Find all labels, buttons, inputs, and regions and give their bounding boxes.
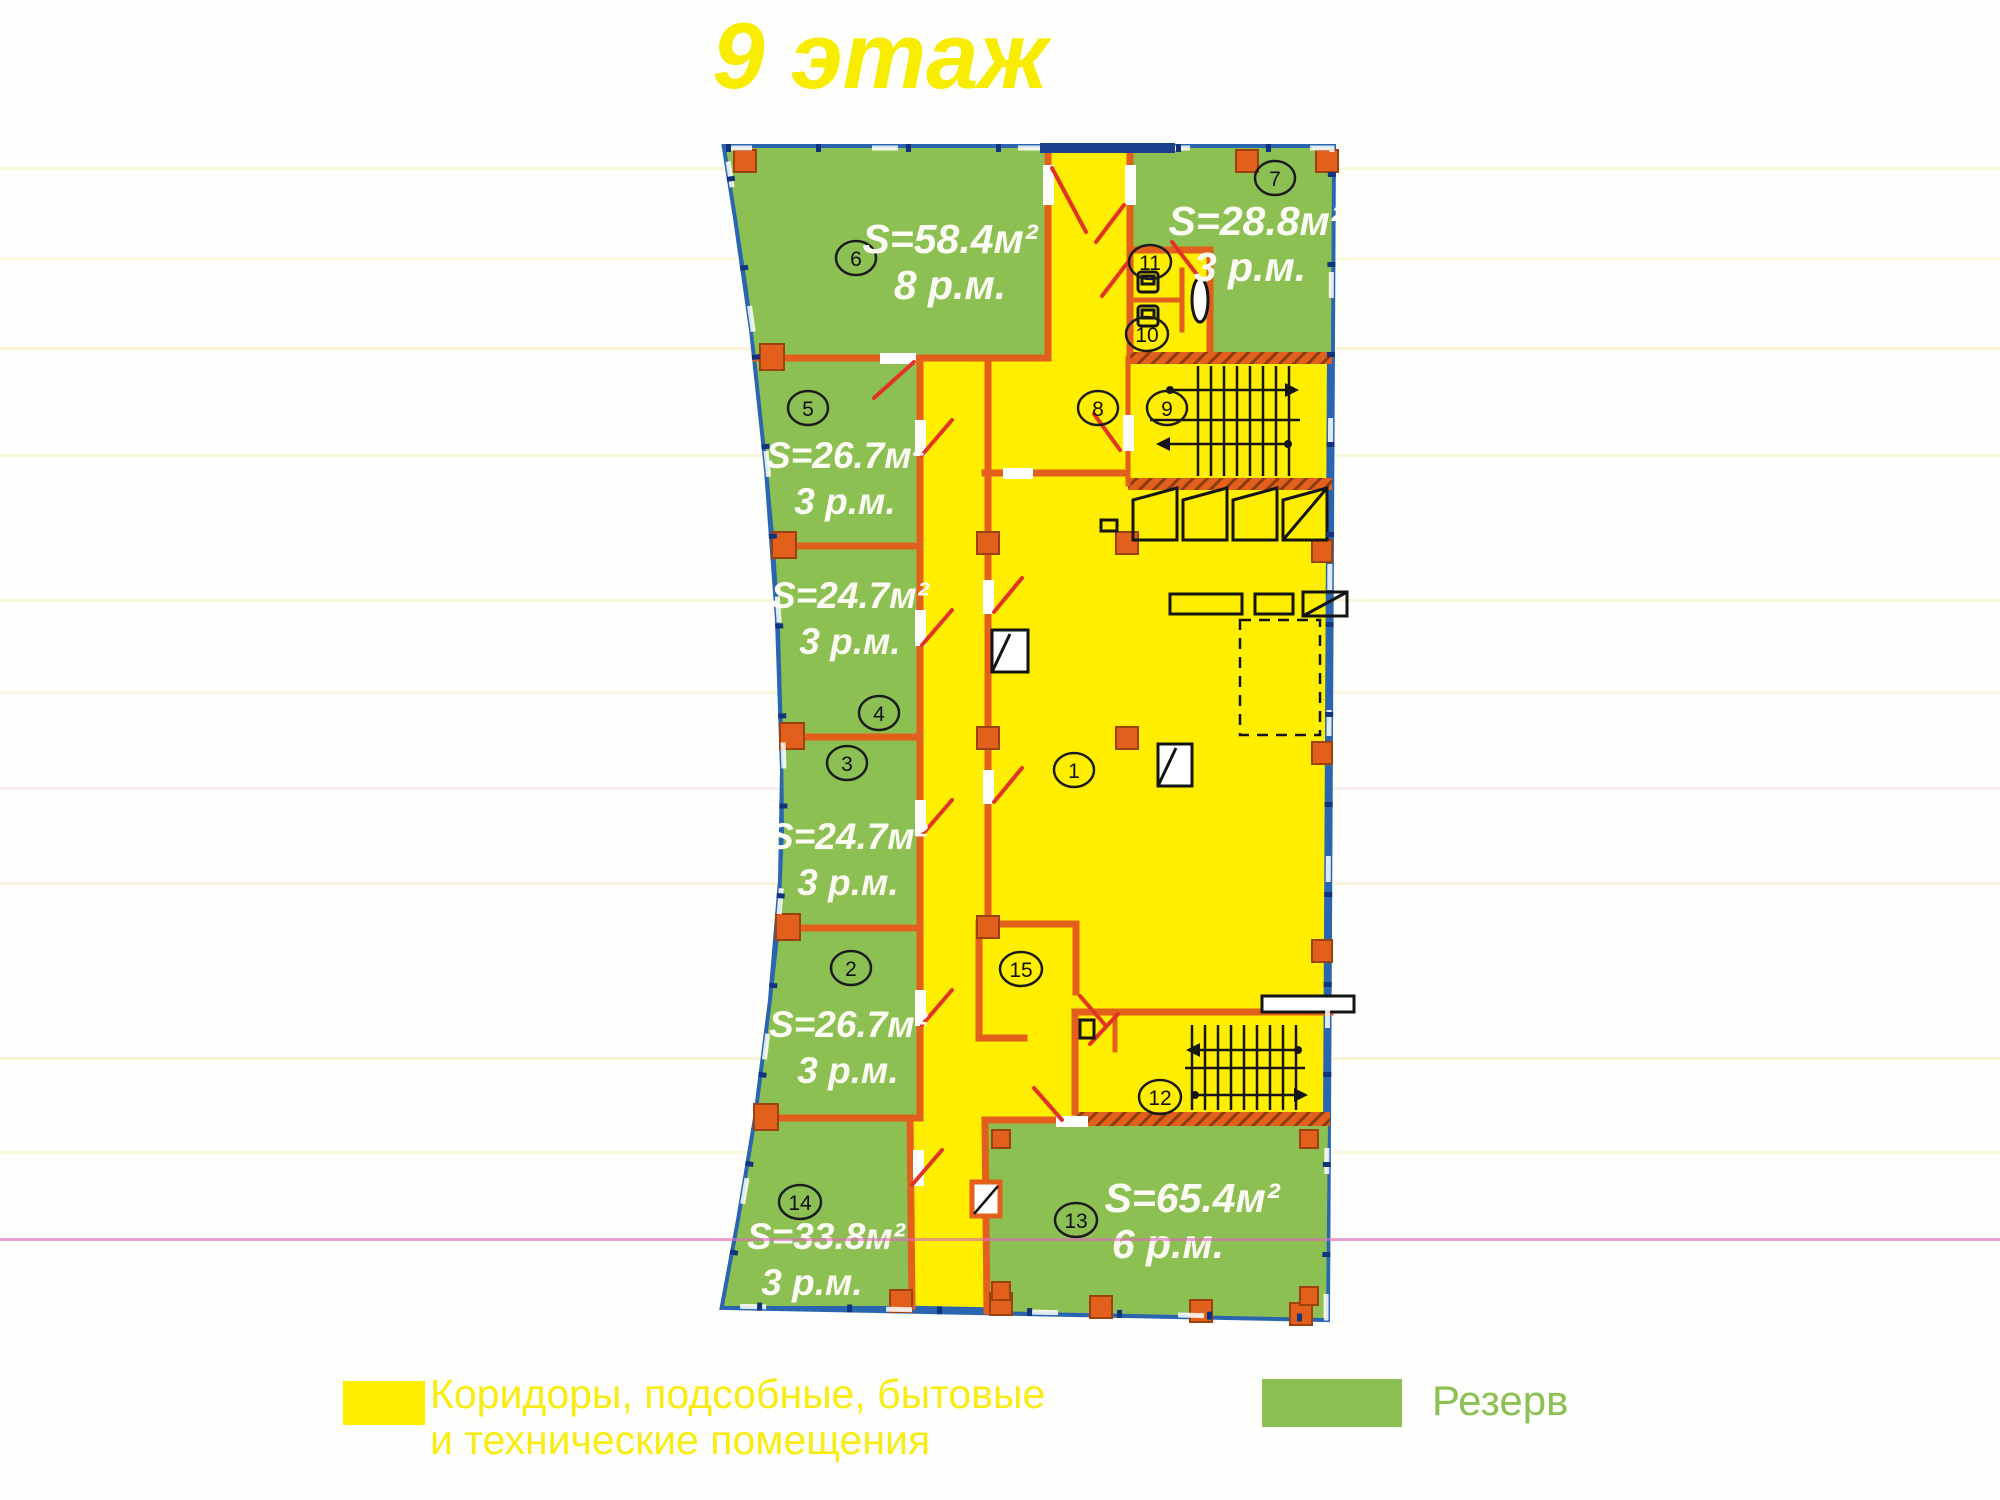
room-13-places-label: 6 р.м.	[1112, 1221, 1224, 1267]
svg-text:11: 11	[1139, 252, 1161, 275]
stair-upper-bottom-wall	[1128, 478, 1332, 490]
svg-text:1: 1	[1068, 760, 1080, 783]
stair-landing-rail	[1262, 996, 1354, 1012]
room-13-area-label: S=65.4м²	[1104, 1175, 1280, 1221]
door-leaf-icon	[1158, 744, 1192, 786]
room-3-area-label: S=24.7м²	[769, 816, 929, 857]
svg-text:13: 13	[1064, 1210, 1087, 1233]
page-title: 9 этаж	[712, 3, 1052, 108]
room-3-places-label: 3 р.м.	[797, 862, 898, 903]
svg-text:2: 2	[845, 958, 857, 981]
room-6-area-label: S=58.4м²	[862, 216, 1038, 262]
legend-reserve-swatch	[1262, 1379, 1402, 1427]
scanned-floor-plan-page: 9 этаж	[0, 0, 2000, 1500]
svg-text:4: 4	[873, 703, 885, 726]
svg-text:5: 5	[802, 398, 814, 421]
legend-corridor-label-line1: Коридоры, подсобные, бытовые	[430, 1371, 1045, 1417]
room-6-places-label: 8 р.м.	[894, 262, 1006, 308]
legend-corridor-swatch	[343, 1381, 425, 1425]
room-5-places-label: 3 р.м.	[794, 481, 895, 522]
room-2-places-label: 3 р.м.	[797, 1050, 898, 1091]
svg-text:8: 8	[1092, 398, 1104, 421]
room-14-places-label: 3 р.м.	[761, 1262, 862, 1303]
floor-plan: 1 2 3 4 5 6 7 8 9 10 11 12 13 14 15 S=58…	[724, 148, 1354, 1325]
room-14-area-label: S=33.8м²	[747, 1216, 907, 1257]
svg-text:14: 14	[788, 1192, 812, 1215]
magenta-scan-line	[0, 1238, 2000, 1241]
svg-text:12: 12	[1148, 1087, 1171, 1110]
door-leaf-icon	[992, 630, 1028, 672]
floor-plan-svg: 9 этаж	[0, 0, 2000, 1500]
svg-text:7: 7	[1269, 168, 1281, 191]
legend-corridor-label-line2: и технические помещения	[430, 1417, 930, 1463]
legend-reserve-label: Резерв	[1432, 1377, 1568, 1424]
svg-text:10: 10	[1135, 324, 1158, 347]
svg-text:9: 9	[1161, 398, 1173, 421]
stair-lower-bottom-wall	[1075, 1112, 1330, 1126]
svg-text:3: 3	[841, 753, 853, 776]
room-4-places-label: 3 р.м.	[799, 621, 900, 662]
legend: Коридоры, подсобные, бытовые и техническ…	[343, 1371, 1568, 1463]
room-7-area-label: S=28.8м²	[1168, 198, 1344, 244]
svg-text:15: 15	[1009, 959, 1032, 982]
svg-text:6: 6	[850, 248, 862, 271]
stair-upper-top-wall	[1128, 352, 1332, 364]
room-4-area-label: S=24.7м²	[771, 575, 931, 616]
room-5-area-label: S=26.7м²	[766, 435, 926, 476]
room-7-places-label: 3 р.м.	[1194, 244, 1306, 290]
room-2-area-label: S=26.7м²	[769, 1004, 929, 1045]
